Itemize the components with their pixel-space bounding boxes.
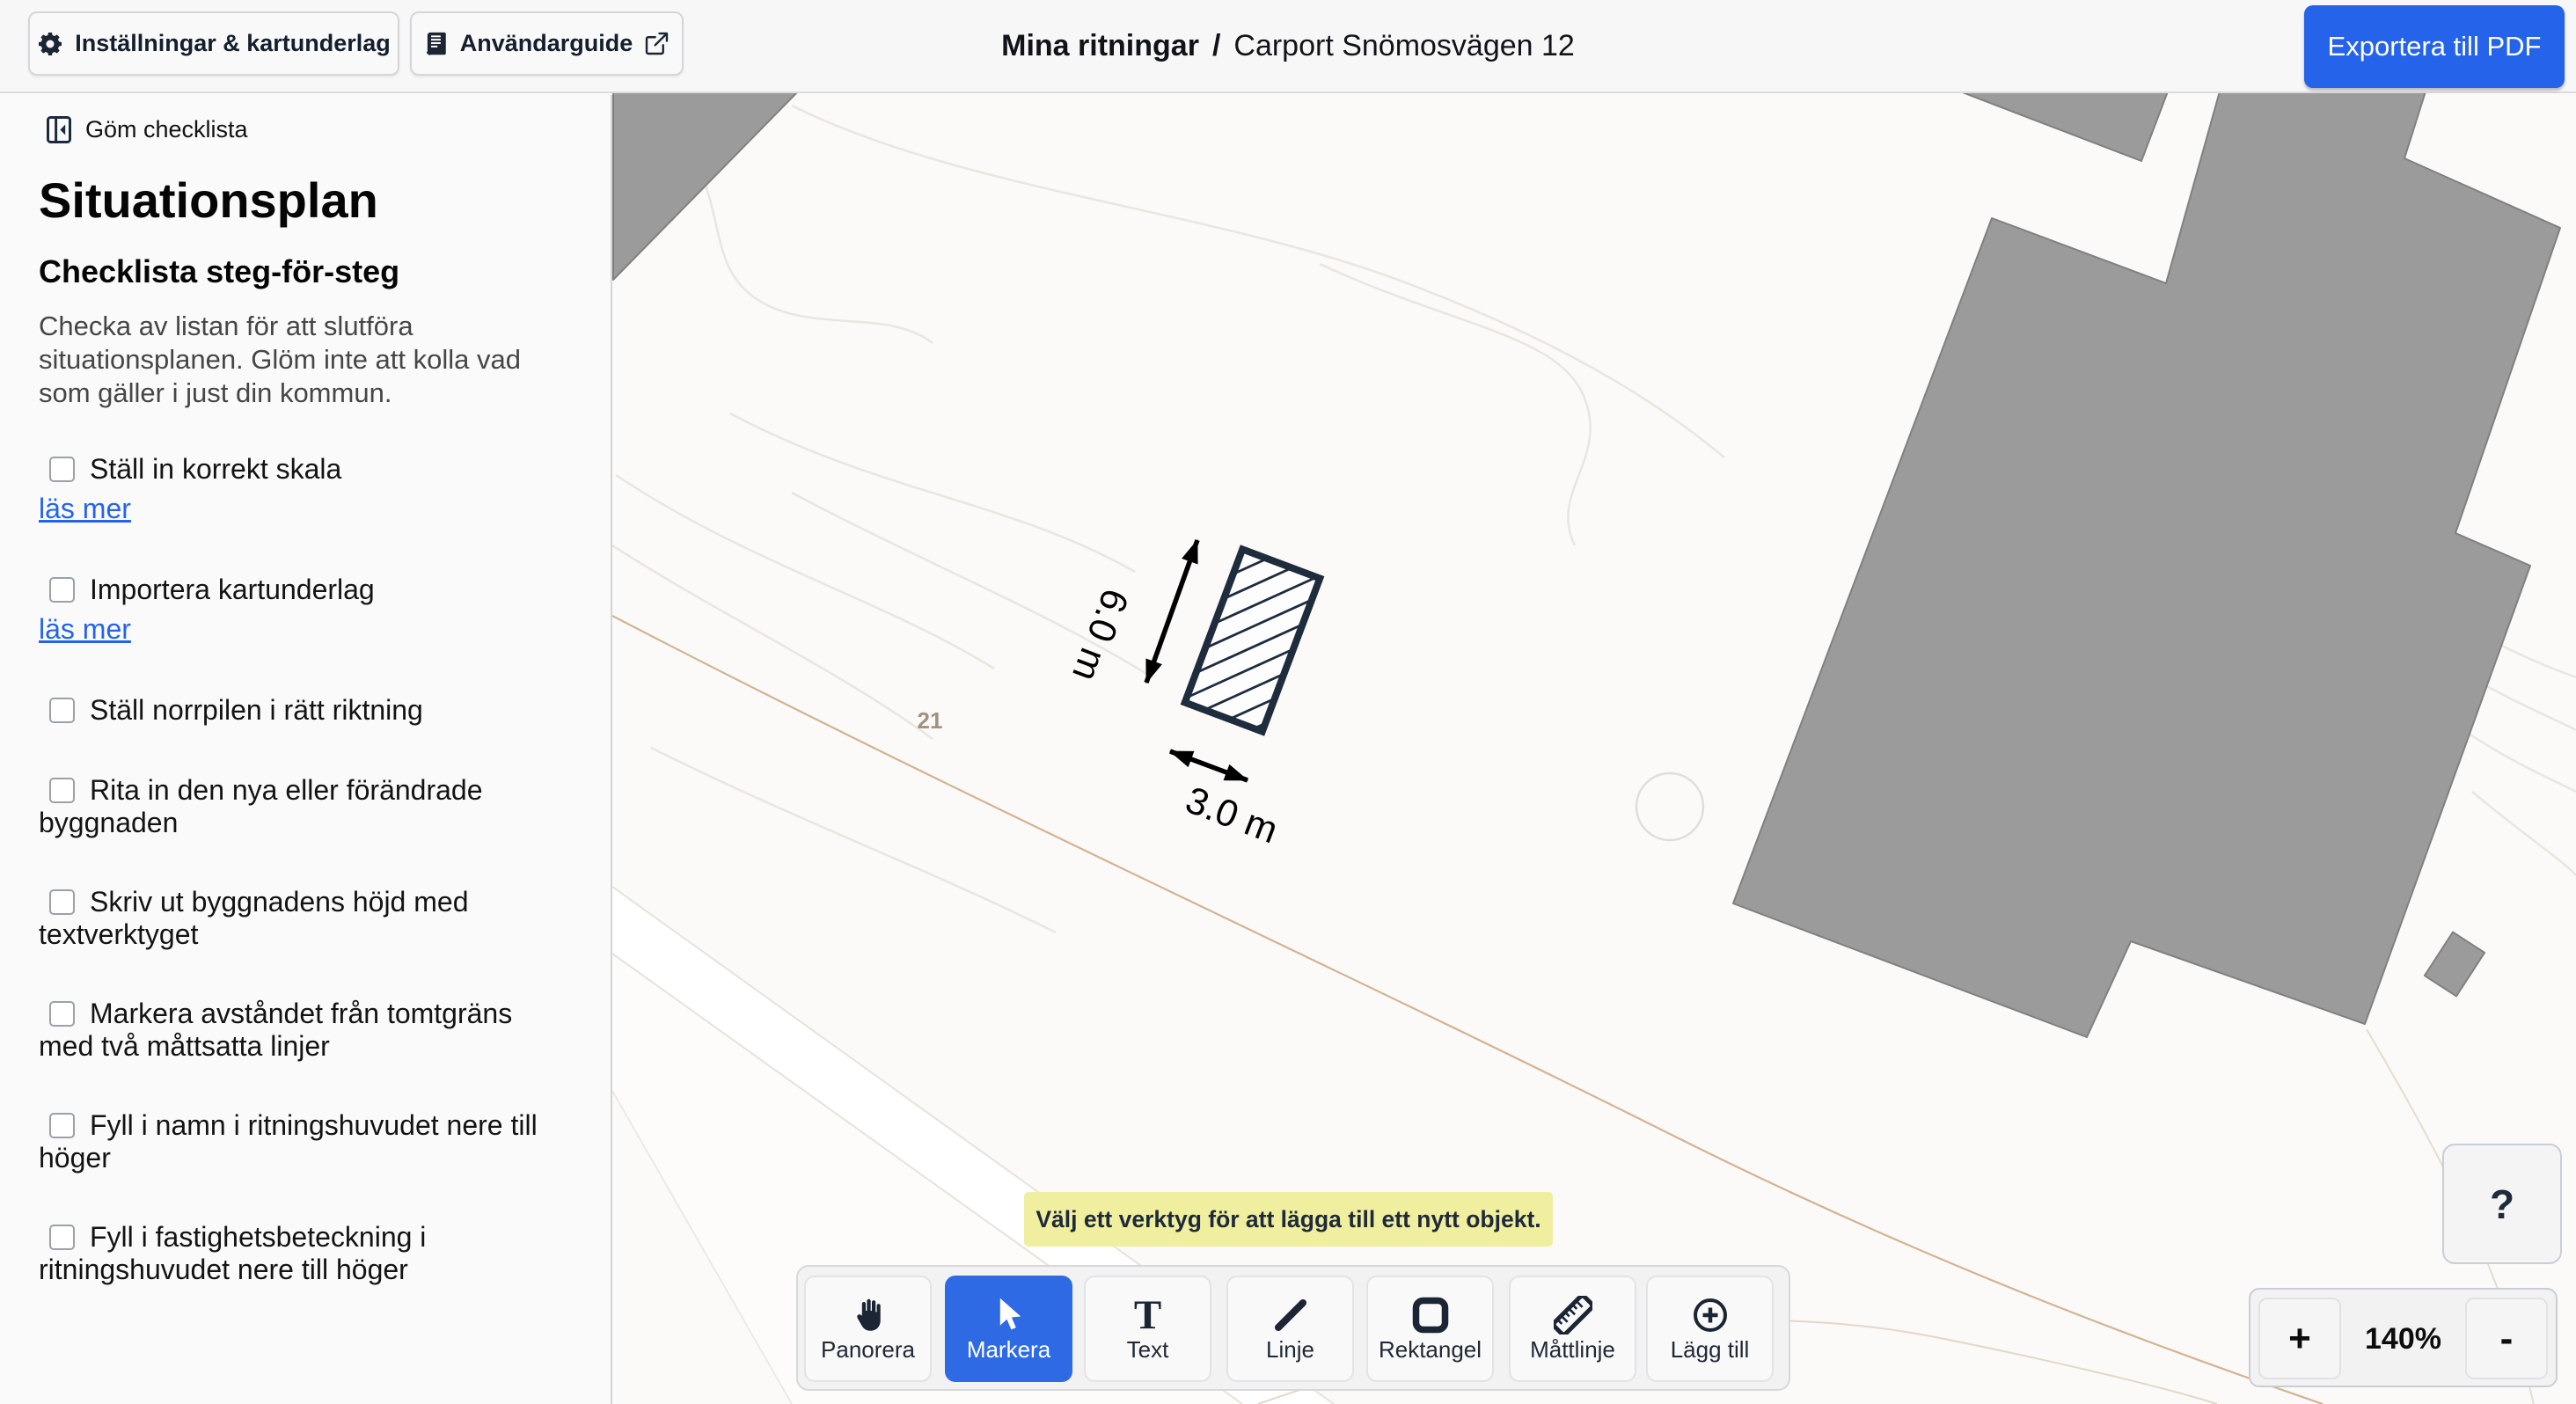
svg-text:21: 21 <box>918 707 943 734</box>
